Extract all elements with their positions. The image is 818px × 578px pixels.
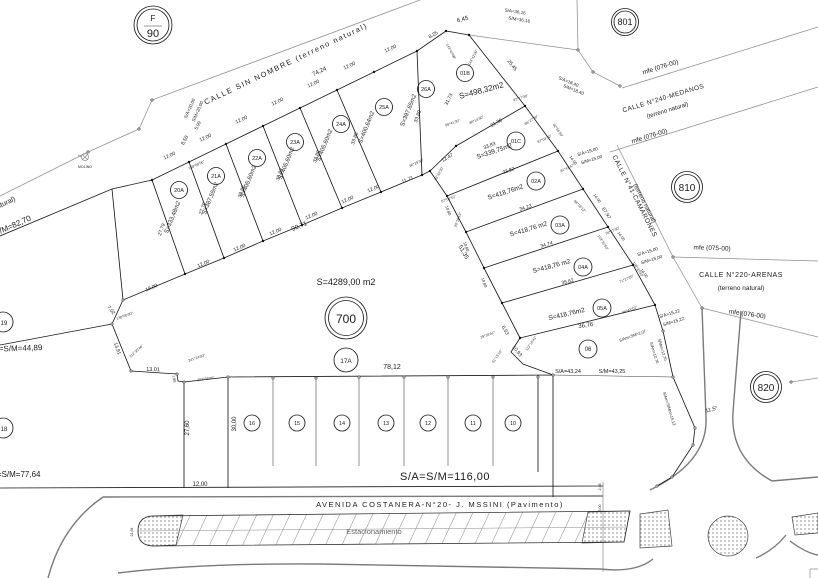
dim-label: 27,60 xyxy=(185,420,191,436)
parcel-19: 19 xyxy=(1,321,8,327)
survey-plan-canvas: F 90 801 810 820 700 17A 19 18 06 20A 21… xyxy=(0,0,818,578)
dim-label: 78,12 xyxy=(383,364,401,371)
dim-label: 12,00 xyxy=(192,482,208,488)
lot-id: 01C xyxy=(511,139,521,145)
lot-id: 14 xyxy=(339,421,345,427)
parcel-18: 18 xyxy=(1,427,8,433)
parking-label: Estacionamiento xyxy=(346,527,401,536)
ref-label: S/A=S/M=77,64 xyxy=(0,470,41,479)
ref-label: S/A=43,24 xyxy=(555,369,581,375)
lot-id: 25A xyxy=(379,105,389,111)
lot-id: 10 xyxy=(510,421,516,427)
lot-id: 20A xyxy=(174,188,184,194)
dim-label: 2,48 xyxy=(598,484,602,491)
street-arenas-note: (terreno natural) xyxy=(718,285,765,292)
ref-label: S/M=43,25 xyxy=(599,369,626,375)
lot-id: 26A xyxy=(421,87,431,93)
lot-id: 04A xyxy=(578,265,588,271)
block-810: 810 xyxy=(679,183,696,194)
dim-label: 5,00 xyxy=(598,505,602,512)
street-arenas: CALLE N°220-ARENAS xyxy=(699,271,783,279)
sheet-letter: F xyxy=(151,14,156,23)
street-avenida: AVENIDA COSTANERA-N°20- J. MSSINI (Pavim… xyxy=(316,500,564,509)
block-801: 801 xyxy=(617,17,632,27)
parcel-700: 700 xyxy=(336,312,356,326)
block-820: 820 xyxy=(758,383,775,394)
parcel-17a: 17A xyxy=(340,358,352,365)
roundabout-island xyxy=(708,516,748,556)
lot-id: 05A xyxy=(597,306,607,312)
lot-id: 24A xyxy=(336,122,346,128)
lot-id: 03A xyxy=(555,223,565,229)
area-label-700: S=4289,00 m2 xyxy=(317,277,376,287)
lot-id: 15 xyxy=(294,421,300,427)
parcel-06: 06 xyxy=(585,347,592,353)
lot-id: 02A xyxy=(531,179,541,185)
dim-label: 21,84 xyxy=(130,528,134,537)
lot-id: 12 xyxy=(425,421,431,427)
lot-id: 22A xyxy=(252,156,262,162)
sheet-number: 90 xyxy=(147,28,159,40)
lot-id: 21A xyxy=(211,174,221,180)
mfe-label: mfe (075-00) xyxy=(693,244,730,252)
windmill-label: MOLINO xyxy=(78,165,92,169)
dim-label: 13,01 xyxy=(146,367,160,373)
lot-id: 16 xyxy=(249,421,255,427)
lot-id: 23A xyxy=(290,140,300,146)
lot-id: 11 xyxy=(470,421,476,427)
dim-label: 30,00 xyxy=(232,416,238,432)
ref-label: S/A=S/M=116,00 xyxy=(400,471,490,483)
lot-id: 13 xyxy=(383,421,389,427)
lot-id: 01B xyxy=(460,71,470,77)
